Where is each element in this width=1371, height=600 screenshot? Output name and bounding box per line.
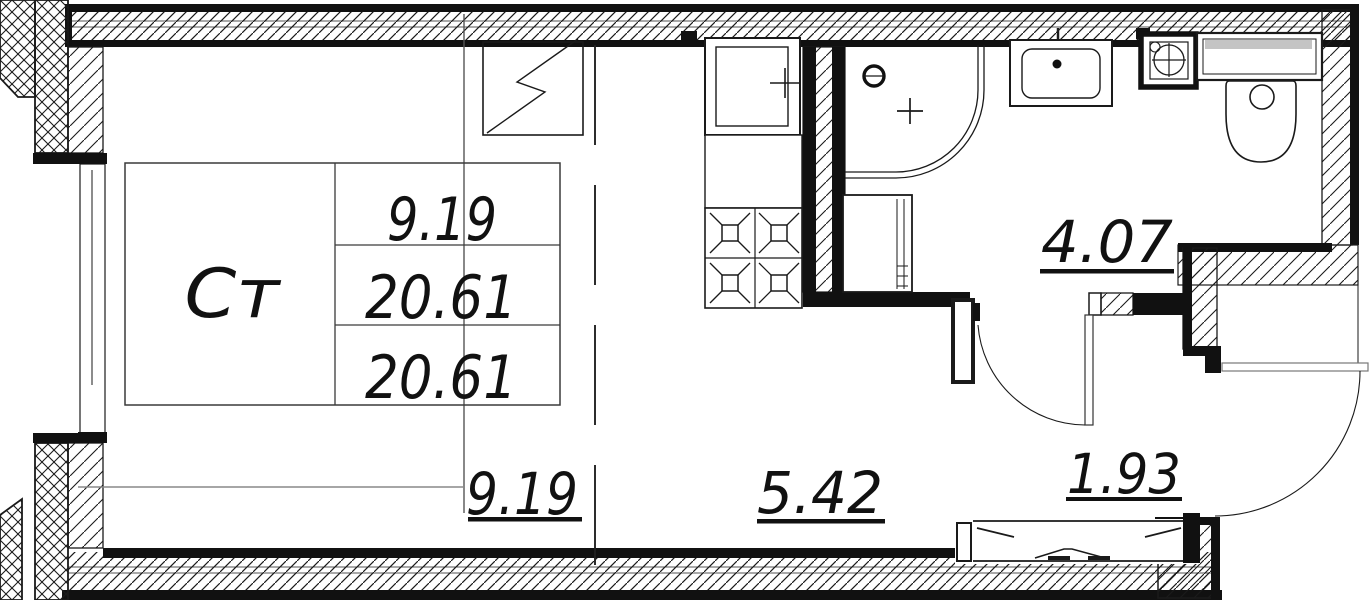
- hallway-area-label: 1.93: [1067, 442, 1181, 506]
- legend-table: Ст 9.19 20.61 20.61: [125, 163, 560, 413]
- bathroom-door: [978, 315, 1093, 425]
- flush-button-icon: [1250, 85, 1274, 109]
- unit-type-label: Ст: [185, 255, 283, 334]
- entrance-door-leaf: [1222, 363, 1368, 371]
- washing-machine: [843, 195, 912, 292]
- entrance-door: [1215, 363, 1368, 516]
- entrance-door-swing-arc: [1215, 371, 1360, 516]
- floor-plan-drawing: Ст 9.19 20.61 20.61 9.19 5.42 1.93 4.07: [0, 0, 1371, 600]
- bathroom-sink: [1010, 28, 1112, 106]
- kitchen-area-label: 5.42: [757, 459, 883, 527]
- bathroom-left-wall: [803, 47, 845, 292]
- kitchen-sink: [705, 38, 800, 135]
- stove: [705, 208, 802, 308]
- closet-zigzag-icon: [487, 39, 578, 133]
- unit-reduced-area-value: 20.61: [365, 343, 517, 413]
- faucet-dot-icon: [1053, 60, 1062, 69]
- toilet: [1197, 33, 1322, 162]
- kitchen: [483, 38, 802, 308]
- bathroom-door-swing-arc: [978, 325, 1085, 425]
- unit-total-area-value: 20.61: [365, 263, 517, 333]
- corner-shower: [845, 45, 984, 178]
- kitchen-counter: [705, 135, 802, 208]
- unit-living-area-value: 9.19: [387, 185, 497, 255]
- bathroom-area-label: 4.07: [1041, 208, 1173, 276]
- hallway-window-element: [955, 513, 1200, 564]
- hallway-pier: [953, 300, 973, 382]
- floor-plan: Ст 9.19 20.61 20.61 9.19 5.42 1.93 4.07: [0, 0, 1371, 600]
- facade-window: [78, 153, 107, 443]
- closet-unit: [483, 39, 583, 135]
- bathroom-door-leaf: [1085, 315, 1093, 425]
- bathroom-bottom-wall: [803, 292, 1183, 382]
- entry-wall-block: [1183, 245, 1221, 373]
- corner-vent-unit: [1141, 34, 1196, 87]
